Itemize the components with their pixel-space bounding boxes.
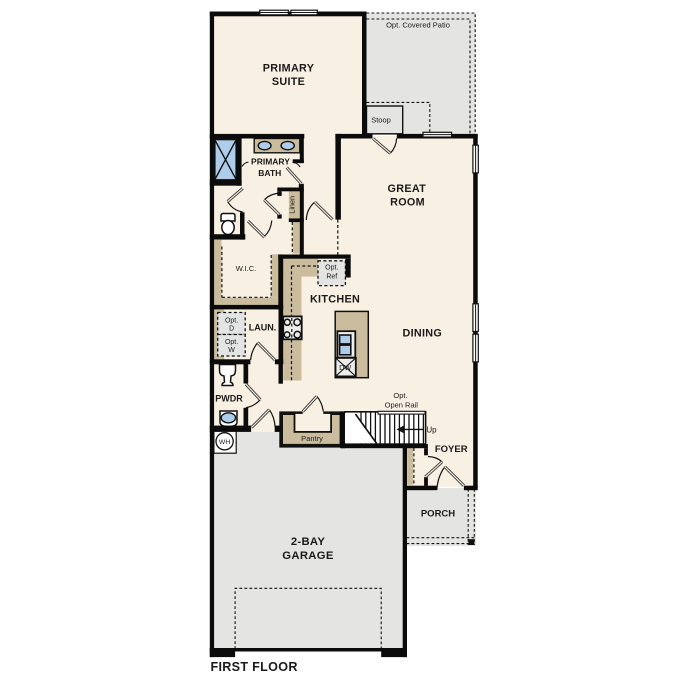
svg-text:Open Rail: Open Rail [385,401,419,410]
svg-text:ROOM: ROOM [390,196,425,208]
svg-text:D: D [229,326,234,333]
svg-text:Ref: Ref [326,274,337,281]
svg-text:PORCH: PORCH [421,509,455,520]
svg-text:W: W [228,347,235,354]
svg-text:FOYER: FOYER [435,444,468,455]
svg-text:SUITE: SUITE [272,76,305,88]
svg-text:PRIMARY: PRIMARY [251,157,290,167]
svg-text:Linen: Linen [288,196,297,214]
svg-text:PRIMARY: PRIMARY [263,63,315,75]
svg-text:PWDR: PWDR [215,394,243,404]
svg-text:Opt. Covered Patio: Opt. Covered Patio [386,20,450,29]
svg-text:GARAGE: GARAGE [282,550,334,562]
svg-text:Opt.: Opt. [325,265,338,272]
svg-text:WH: WH [219,439,230,446]
svg-text:KITCHEN: KITCHEN [310,294,360,306]
svg-text:FIRST FLOOR: FIRST FLOOR [211,660,298,674]
svg-text:Opt.: Opt. [225,339,238,346]
svg-text:BATH: BATH [258,168,281,178]
svg-text:GREAT: GREAT [388,183,427,195]
svg-text:2-BAY: 2-BAY [291,536,326,548]
svg-text:Opt.: Opt. [393,391,407,400]
svg-text:Pantry: Pantry [301,434,323,443]
svg-text:LAUN.: LAUN. [249,322,277,332]
svg-text:DINING: DINING [403,328,443,340]
svg-text:Opt.: Opt. [225,318,238,325]
svg-text:Up: Up [426,426,437,435]
svg-text:W.I.C.: W.I.C. [236,264,256,273]
svg-text:Stoop: Stoop [371,115,391,124]
svg-text:DW: DW [339,363,351,372]
